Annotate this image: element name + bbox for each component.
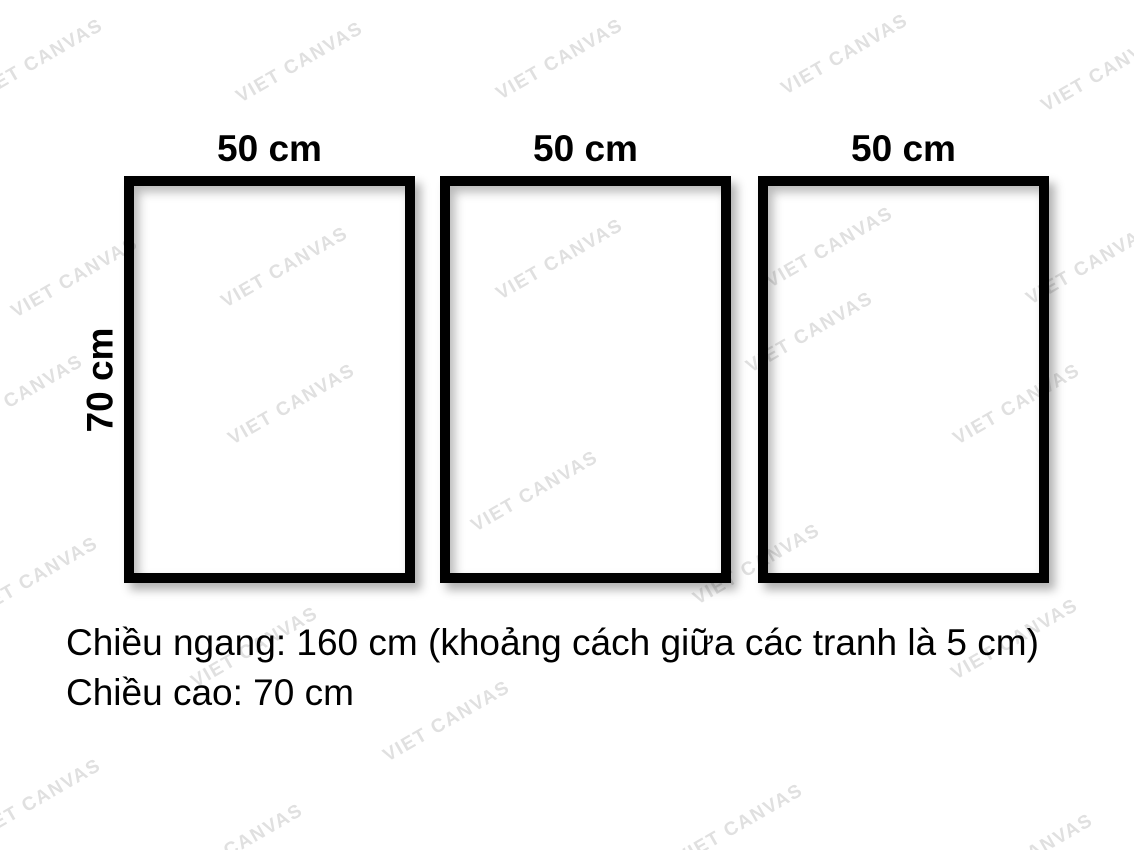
caption-vertical-dimension: Chiều cao: 70 cm <box>66 668 1116 718</box>
watermark-text: VIET CANVAS <box>673 780 808 850</box>
watermark-text: VIET CANVAS <box>493 15 628 105</box>
watermark-text: VIET CANVAS <box>963 810 1098 850</box>
dimension-caption: Chiều ngang: 160 cm (khoảng cách giữa cá… <box>66 618 1116 718</box>
watermark-text: VIET CANVAS <box>0 15 107 105</box>
canvas-frame-2 <box>440 176 731 583</box>
frame-height-label: 70 cm <box>79 327 121 432</box>
caption-horizontal-dimension: Chiều ngang: 160 cm (khoảng cách giữa cá… <box>66 618 1116 668</box>
watermark-text: VIET CANVAS <box>233 18 368 108</box>
frame3-width-label: 50 cm <box>758 126 1049 172</box>
watermark-text: VIET CANVAS <box>1038 27 1134 117</box>
watermark-text: VIET CANVAS <box>173 800 308 850</box>
canvas-frame-3 <box>758 176 1049 583</box>
watermark-text: VIET CANVAS <box>778 10 913 100</box>
frame2-width-label: 50 cm <box>440 126 731 172</box>
frame-height-label-container: 70 cm <box>52 176 148 583</box>
watermark-text: VIET CANVAS <box>0 755 105 845</box>
dimension-diagram: 50 cm 50 cm 50 cm 70 cm Chiều ngang: 160… <box>0 0 1134 850</box>
frame1-width-label: 50 cm <box>124 126 415 172</box>
canvas-frame-1 <box>124 176 415 583</box>
